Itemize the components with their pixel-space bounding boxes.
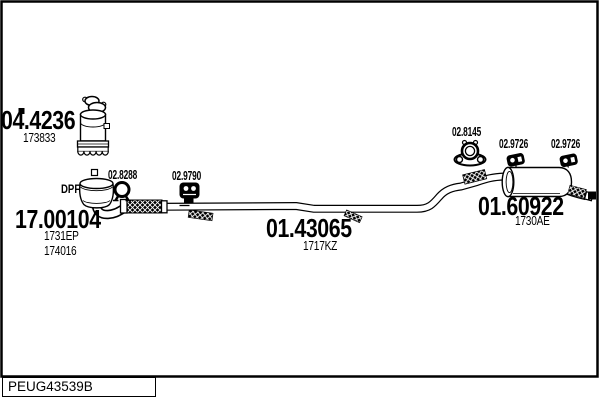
- oe-ref-centre-pipe: 1717KZ: [303, 239, 337, 252]
- fitting-number-clamp: 02.8288: [108, 168, 137, 181]
- rubber-mount-icon: [180, 183, 200, 206]
- exhaust-diagram-page: 04.4236 17.00104 01.43065 01.60922 17383…: [0, 0, 600, 400]
- oe-ref-dpf-2: 174016: [44, 244, 76, 257]
- centre-pipe-drawing: [160, 177, 504, 209]
- rubber-hanger-rear-icon: [559, 153, 579, 168]
- fitting-number-gasket: 02.8145: [452, 125, 481, 138]
- fitting-number-mount: 02.9790: [172, 169, 201, 182]
- flange-gasket-icon: [455, 141, 486, 166]
- fitting-number-hanger-rear: 02.9726: [551, 137, 580, 150]
- pipe-clamp-icon: [113, 183, 131, 201]
- diagram-code: PEUG43539B: [8, 379, 93, 394]
- tailpipe-hatch-drawing: [568, 185, 587, 198]
- rubber-hanger-front-icon: [506, 152, 526, 167]
- dpf-tag: DPF: [61, 183, 80, 195]
- oe-ref-catalyst: 173833: [23, 131, 55, 144]
- diagram-code-box: PEUG43539B: [2, 377, 156, 397]
- oe-ref-rear-silencer: 1730AE: [515, 214, 550, 227]
- flex-pipe-drawing: [121, 200, 168, 214]
- oe-ref-dpf-1: 1731EP: [44, 229, 79, 242]
- page-marker-right: [588, 192, 596, 200]
- fitting-number-hanger-front: 02.9726: [499, 137, 528, 150]
- joint-sleeve-drawing: [188, 210, 213, 221]
- catalytic-converter-drawing: [78, 97, 110, 156]
